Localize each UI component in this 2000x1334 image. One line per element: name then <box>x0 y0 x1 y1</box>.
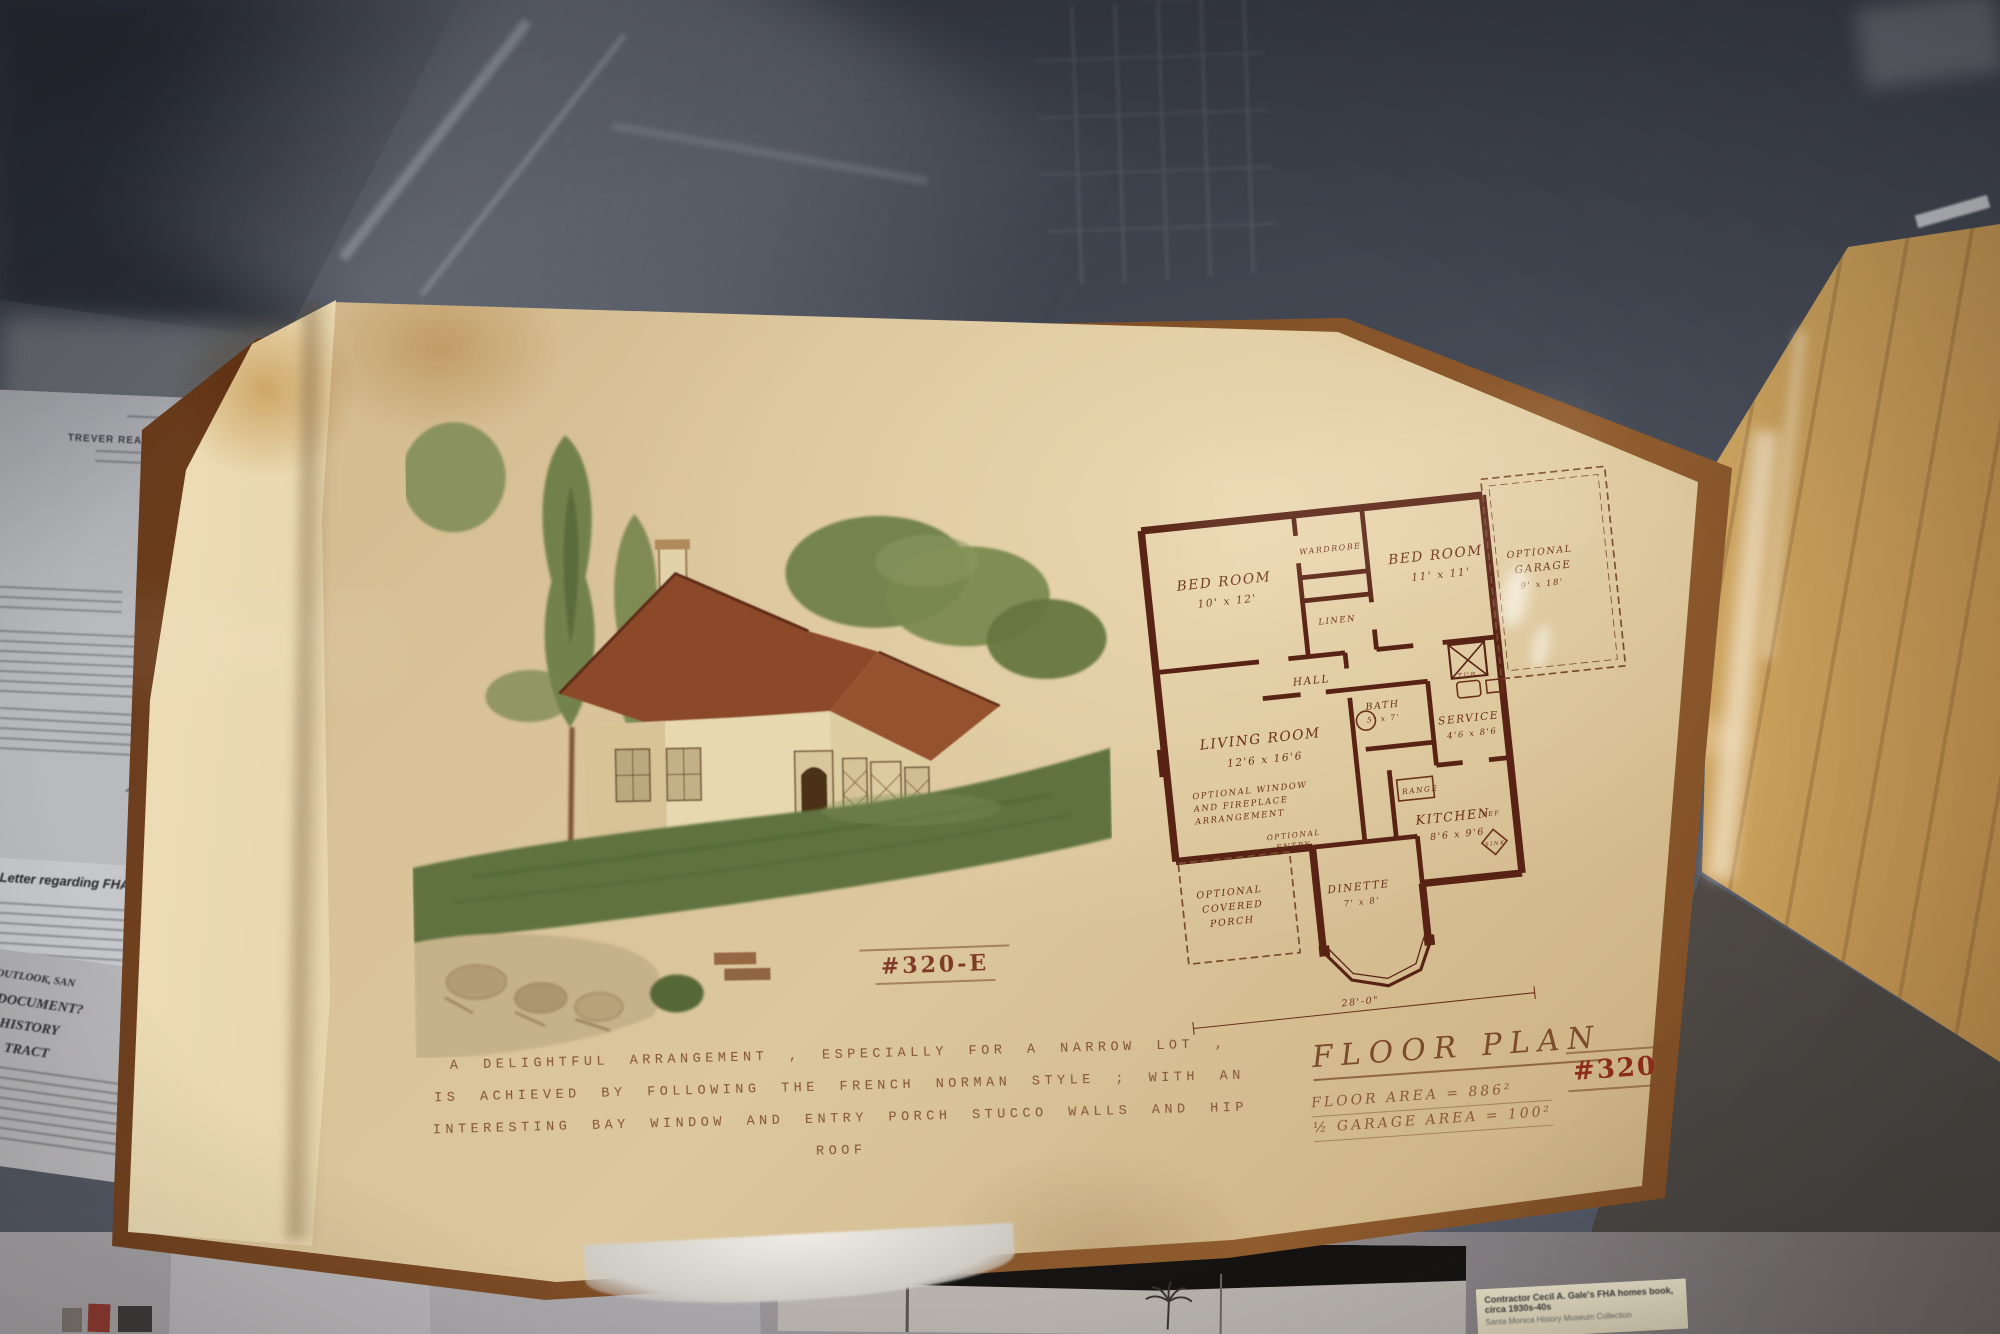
vignette <box>0 0 2000 1334</box>
museum-display-photo: Contractor Cecil A. Gale's FHA homes boo… <box>0 0 2000 1334</box>
